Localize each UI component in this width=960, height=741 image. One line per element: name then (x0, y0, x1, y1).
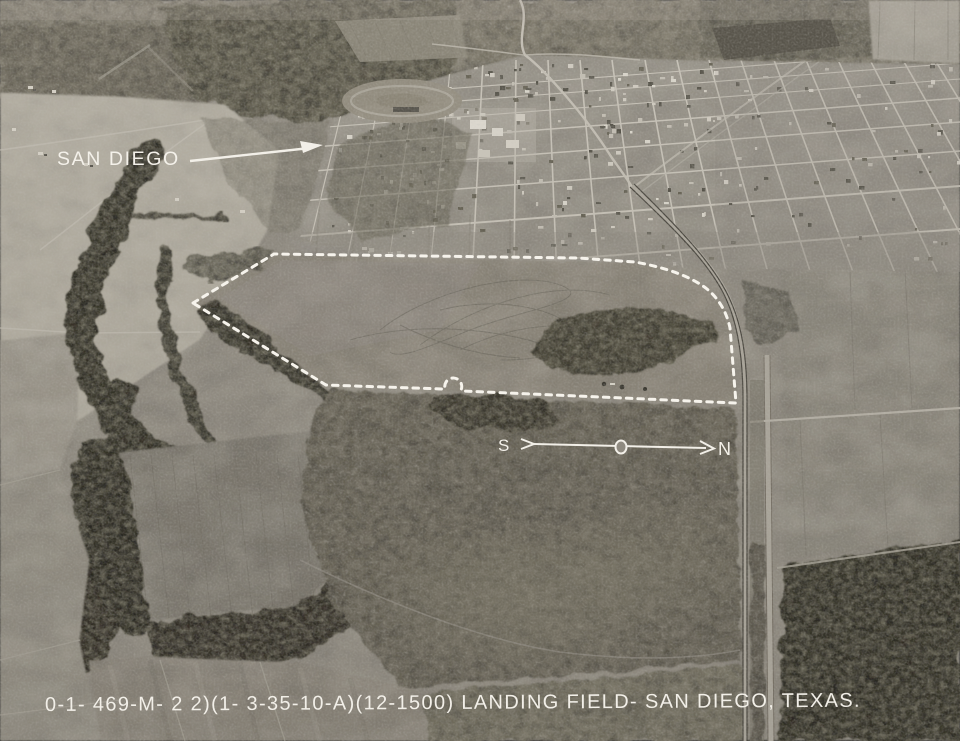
svg-text:S: S (498, 436, 509, 455)
svg-text:SAN DIEGO: SAN DIEGO (57, 148, 180, 170)
svg-text:N: N (718, 439, 731, 459)
svg-text:0-1- 469-M- 2 2)(1- 3-35-10-A): 0-1- 469-M- 2 2)(1- 3-35-10-A)(12-1500) … (45, 690, 861, 716)
